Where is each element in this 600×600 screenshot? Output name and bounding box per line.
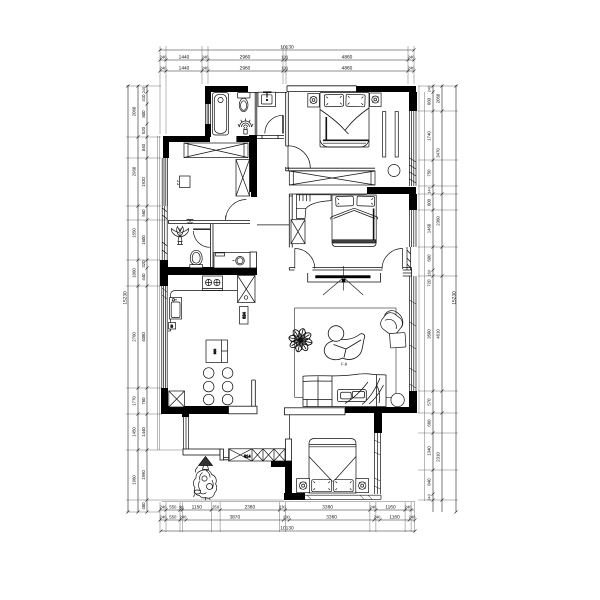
svg-text:15230: 15230	[123, 291, 129, 305]
svg-text:2360: 2360	[244, 505, 255, 511]
svg-text:1440: 1440	[179, 55, 190, 61]
svg-text:230: 230	[279, 505, 287, 510]
svg-text:1150: 1150	[192, 505, 203, 511]
svg-text:2960: 2960	[132, 166, 137, 176]
svg-text:560: 560	[141, 209, 146, 217]
svg-text:4080: 4080	[141, 332, 146, 342]
svg-text:320: 320	[141, 260, 146, 268]
svg-text:4860: 4860	[342, 66, 353, 72]
svg-text:2760: 2760	[132, 332, 137, 342]
svg-text:240: 240	[405, 505, 413, 510]
svg-text:840: 840	[141, 143, 146, 151]
svg-text:1740: 1740	[427, 131, 432, 141]
svg-text:240: 240	[202, 55, 210, 60]
svg-text:570: 570	[427, 398, 432, 406]
svg-text:140: 140	[427, 186, 432, 193]
svg-text:1160: 1160	[389, 515, 400, 521]
svg-text:1770: 1770	[132, 396, 137, 406]
svg-text:240: 240	[160, 66, 168, 71]
svg-text:1550: 1550	[132, 228, 137, 238]
svg-text:B: B	[171, 324, 174, 329]
svg-text:10130: 10130	[280, 45, 294, 51]
svg-text:840: 840	[427, 478, 432, 486]
svg-text:240: 240	[180, 515, 188, 520]
svg-text:1450: 1450	[132, 427, 137, 437]
svg-text:3360: 3360	[326, 515, 337, 521]
svg-text:350: 350	[212, 505, 220, 510]
svg-text:150: 150	[427, 269, 432, 276]
svg-text:1460: 1460	[427, 223, 432, 233]
svg-text:600: 600	[427, 254, 432, 262]
svg-text:440: 440	[141, 273, 146, 281]
svg-text:520: 520	[141, 126, 146, 134]
svg-text:1440: 1440	[179, 66, 190, 72]
svg-text:240: 240	[374, 515, 382, 520]
svg-text:2960: 2960	[240, 55, 251, 61]
svg-text:4860: 4860	[342, 55, 353, 61]
svg-text:2060: 2060	[436, 93, 441, 103]
svg-text:240: 240	[369, 505, 377, 510]
svg-text:1340: 1340	[427, 446, 432, 456]
svg-text:F-8: F-8	[341, 362, 348, 367]
svg-text:800: 800	[141, 110, 146, 118]
svg-text:900: 900	[213, 349, 217, 355]
svg-text:2360: 2360	[436, 216, 441, 226]
svg-text:240: 240	[141, 86, 146, 93]
svg-text:1960: 1960	[132, 475, 137, 485]
svg-text:3870: 3870	[229, 515, 240, 521]
svg-text:240: 240	[160, 55, 168, 60]
svg-text:1990: 1990	[141, 470, 146, 480]
svg-text:720: 720	[427, 279, 432, 287]
svg-text:550: 550	[169, 515, 177, 520]
svg-text:1440: 1440	[141, 427, 146, 437]
svg-text:2310: 2310	[436, 452, 441, 462]
svg-text:240: 240	[427, 85, 432, 92]
svg-text:1600: 1600	[141, 235, 146, 245]
svg-text:834: 834	[242, 311, 247, 319]
svg-text:480: 480	[141, 502, 146, 510]
svg-text:130: 130	[281, 66, 289, 71]
svg-text:240: 240	[160, 505, 168, 510]
svg-text:240: 240	[409, 515, 417, 520]
svg-text:914: 914	[244, 454, 251, 459]
svg-text:3470: 3470	[436, 148, 441, 158]
svg-text:240: 240	[202, 66, 210, 71]
svg-text:240: 240	[408, 66, 416, 71]
svg-text:660: 660	[427, 419, 432, 427]
svg-text:760: 760	[141, 397, 146, 405]
svg-text:130: 130	[281, 55, 289, 60]
svg-text:240: 240	[408, 55, 416, 60]
svg-text:1920: 1920	[141, 177, 146, 187]
svg-text:240: 240	[160, 515, 168, 520]
svg-text:4610: 4610	[436, 329, 441, 339]
svg-text:1060: 1060	[132, 268, 137, 278]
svg-text:660: 660	[427, 97, 432, 105]
svg-text:240: 240	[427, 493, 432, 500]
svg-text:1160: 1160	[385, 505, 396, 511]
svg-text:600: 600	[427, 198, 432, 206]
svg-text:10130: 10130	[280, 526, 294, 532]
svg-text:550: 550	[169, 505, 177, 510]
svg-text:3580: 3580	[427, 329, 432, 339]
svg-text:750: 750	[427, 169, 432, 177]
svg-text:15230: 15230	[452, 291, 458, 305]
svg-text:2060: 2060	[132, 106, 137, 116]
svg-text:230: 230	[283, 515, 291, 520]
svg-text:410: 410	[141, 94, 146, 102]
svg-text:3360: 3360	[322, 505, 333, 511]
svg-text:2960: 2960	[240, 66, 251, 72]
